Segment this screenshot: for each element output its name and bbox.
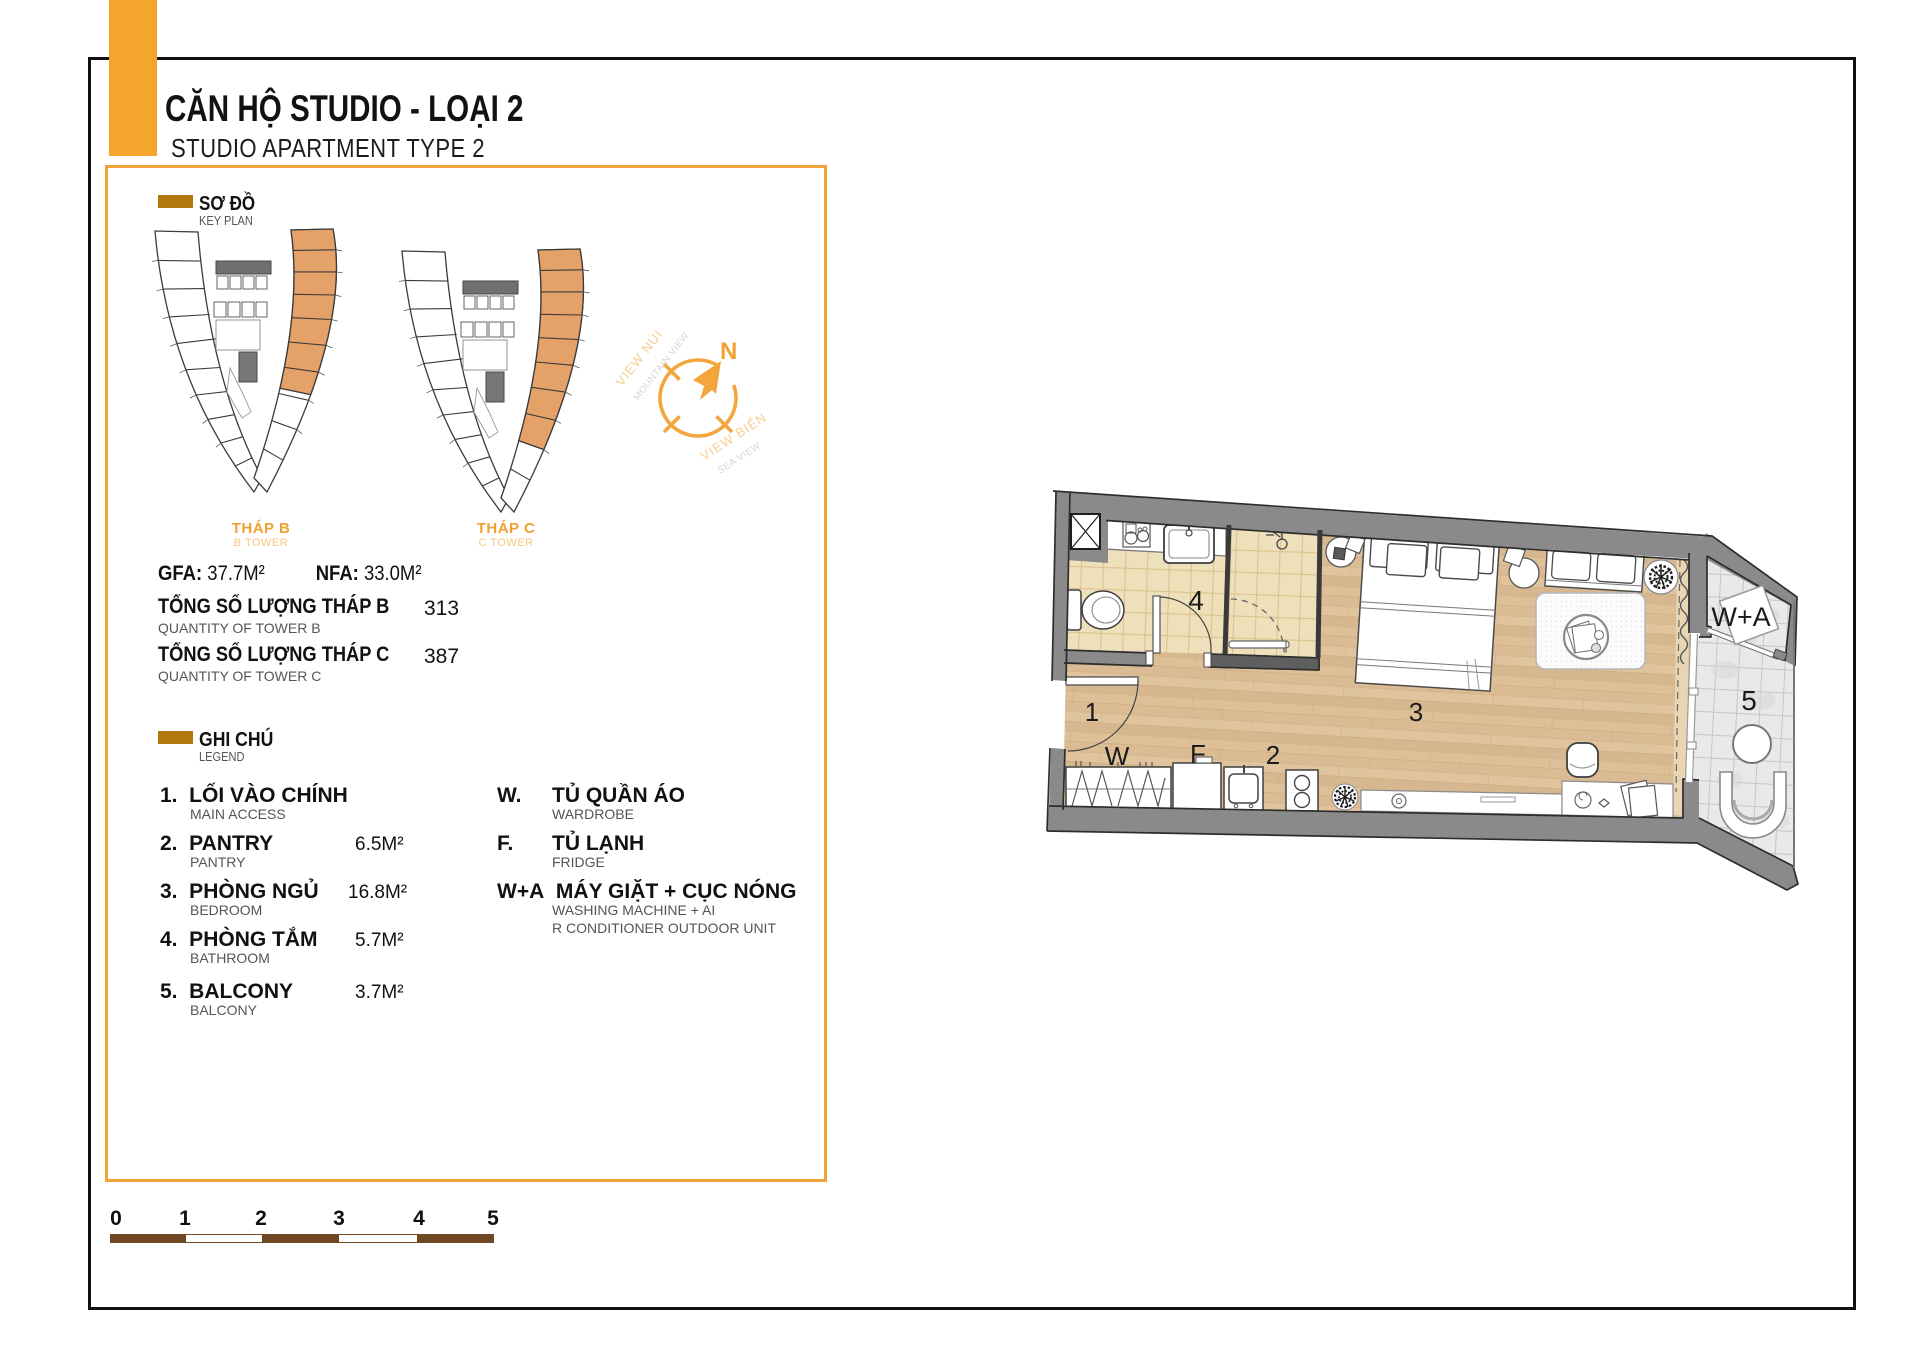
svg-text:C TOWER: C TOWER [478, 537, 533, 549]
svg-text:4: 4 [1188, 585, 1204, 616]
svg-text:W+A: W+A [1711, 602, 1770, 632]
svg-text:3: 3 [1409, 697, 1423, 727]
svg-text:N: N [720, 338, 737, 365]
svg-text:B TOWER: B TOWER [234, 537, 288, 549]
svg-text:F: F [1190, 739, 1206, 769]
svg-text:THÁP B: THÁP B [232, 520, 291, 537]
svg-text:THÁP C: THÁP C [477, 520, 536, 537]
svg-text:5: 5 [1741, 685, 1757, 716]
svg-text:1: 1 [1085, 697, 1099, 727]
svg-text:W: W [1105, 741, 1130, 771]
svg-text:2: 2 [1266, 740, 1280, 770]
